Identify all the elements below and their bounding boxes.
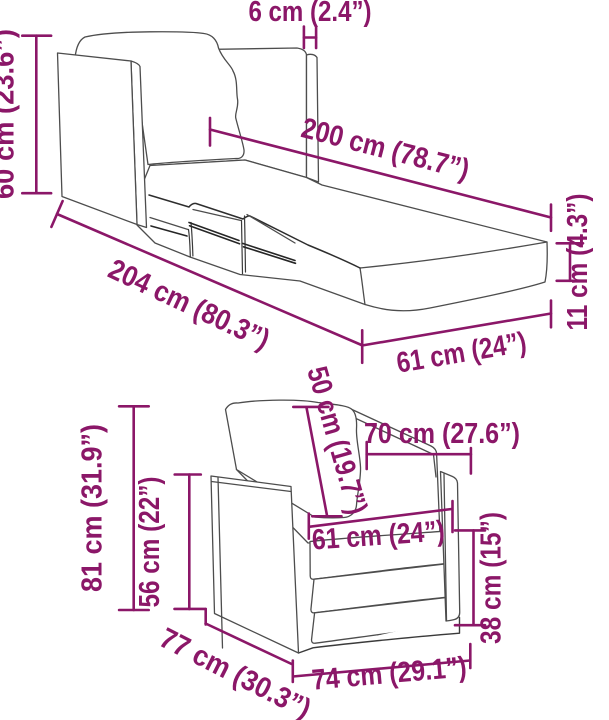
svg-text:11 cm (4.3”): 11 cm (4.3”) [562,194,594,331]
svg-text:56 cm (22”): 56 cm (22”) [134,477,166,608]
svg-text:81 cm (31.9”): 81 cm (31.9”) [77,424,109,592]
svg-text:70 cm (27.6”): 70 cm (27.6”) [364,418,520,450]
svg-text:6 cm (2.4”): 6 cm (2.4”) [249,0,372,28]
svg-text:38 cm (15”): 38 cm (15”) [476,512,508,644]
svg-text:60 cm (23.6”): 60 cm (23.6”) [0,29,21,199]
